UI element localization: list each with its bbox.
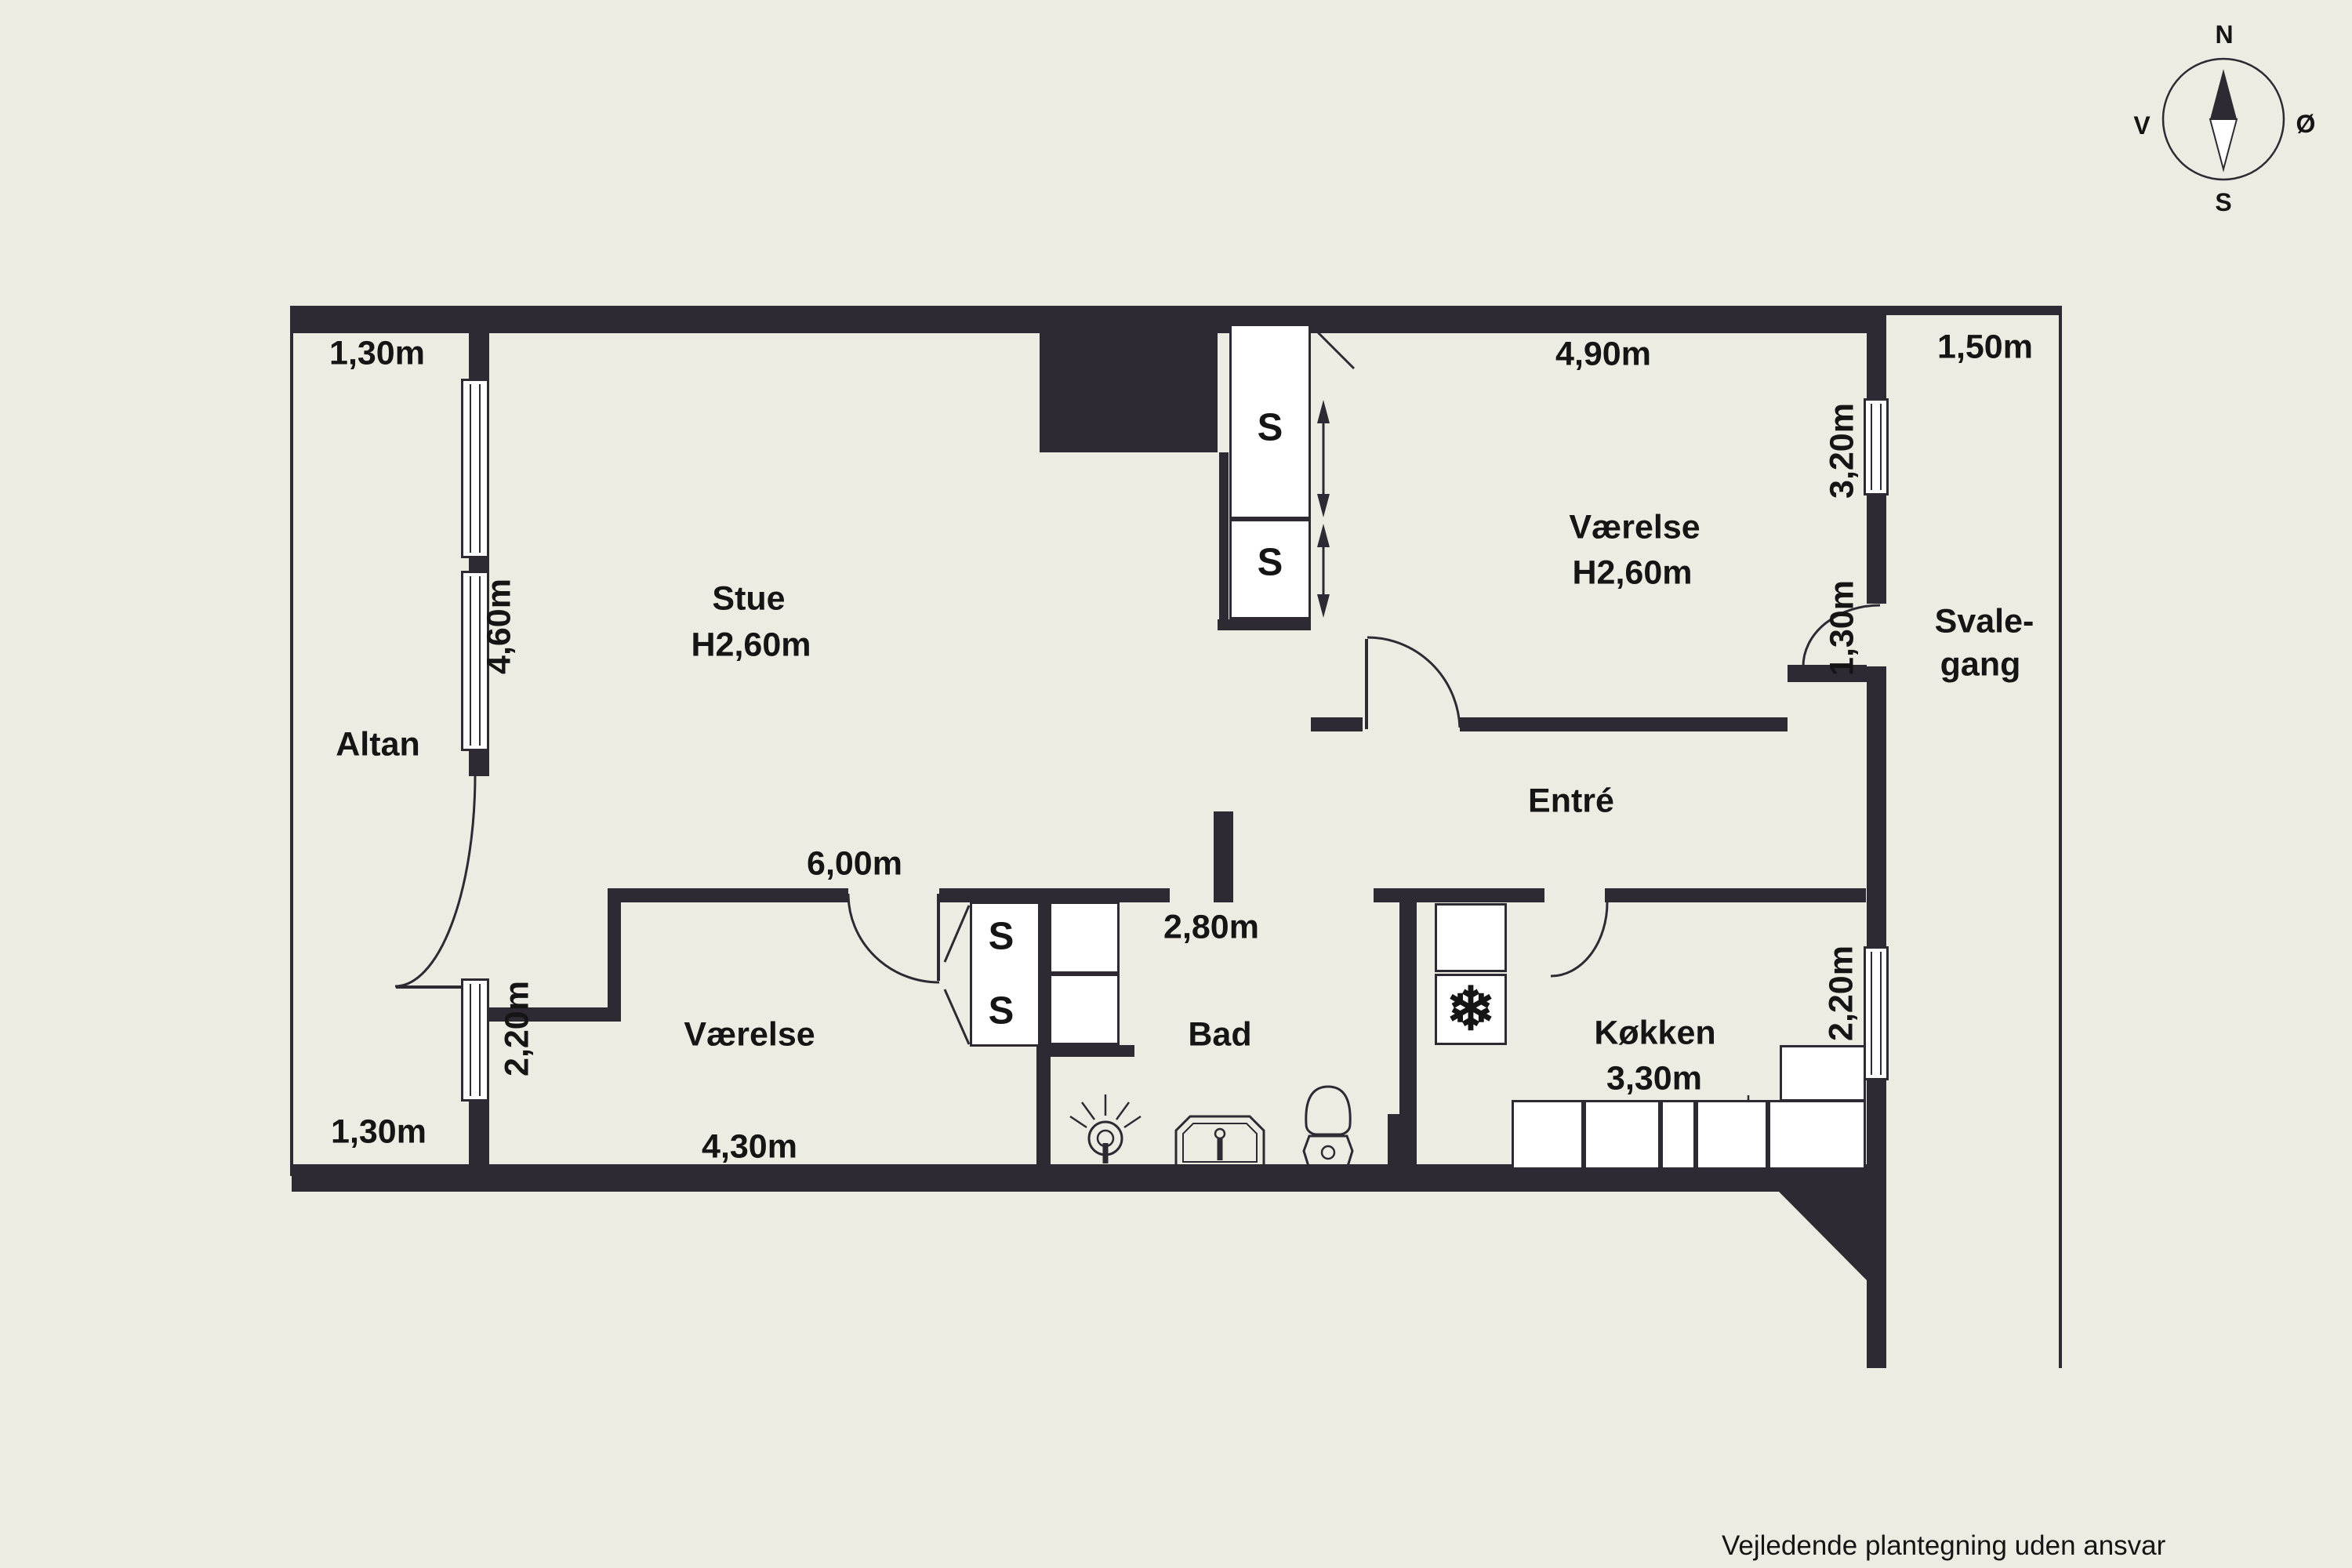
toilet-dot <box>1322 1146 1334 1159</box>
counter-gap <box>1661 1100 1696 1170</box>
dim-stue-width: 6,00m <box>807 848 902 881</box>
compass-o: Ø <box>2296 111 2316 136</box>
dim-vaerelse-sw: 4,30m <box>702 1131 797 1164</box>
room-bad: Bad <box>1188 1018 1251 1052</box>
dim-bad-width: 2,80m <box>1163 911 1259 945</box>
corridor-north-a <box>1311 717 1363 731</box>
closet-ne-2: S <box>1258 544 1283 583</box>
partition-c <box>469 751 489 776</box>
wall-right-d <box>1867 1080 1886 1192</box>
floor-plan-canvas: Vejledende plantegning uden ansvar 1,30m… <box>0 0 2352 1568</box>
washing-machine-box <box>1049 902 1120 974</box>
wall-right-b <box>1867 495 1886 604</box>
plan-linework <box>0 0 2352 1568</box>
partition-d <box>469 1102 489 1168</box>
koekken-window <box>1864 946 1889 1080</box>
room-entre: Entré <box>1528 785 1614 818</box>
sink-dot <box>1215 1129 1225 1138</box>
room-vaerelse-sw: Værelse <box>684 1018 815 1052</box>
door-arc-koekken <box>1551 902 1607 976</box>
svalegang-edge <box>2059 306 2062 1368</box>
wall-right-c <box>1867 666 1886 946</box>
vaerelse-ne-window-mullion <box>1871 404 1882 490</box>
dim-left-window: 4,60m <box>483 579 517 674</box>
height-stue: H2,60m <box>691 629 811 662</box>
altan-window-2-mullion <box>470 576 481 746</box>
shower-ray-5 <box>1124 1116 1141 1127</box>
altan-window-1 <box>461 379 489 558</box>
room-stue: Stue <box>712 583 785 616</box>
corner-chamfer <box>1777 1190 1886 1280</box>
koekken-window-mullion <box>1871 952 1882 1075</box>
room-altan: Altan <box>336 728 420 762</box>
closet-sw-2: S <box>989 993 1014 1031</box>
closet-sw-diag-1 <box>945 906 969 962</box>
partition-b <box>469 558 489 571</box>
door-arc-vaerelse-sw <box>848 894 939 982</box>
room-koekken: Køkken <box>1594 1017 1715 1051</box>
compass-n: N <box>2215 22 2233 47</box>
compass-v: V <box>2133 113 2150 138</box>
laundry-tub-box <box>1049 974 1120 1045</box>
electrical-box <box>1435 903 1507 972</box>
shower-ray-1 <box>1082 1102 1094 1120</box>
compass-needle-south <box>2210 119 2237 169</box>
counter-right <box>1768 1100 1866 1170</box>
dim-entry-door: 1,30m <box>1826 580 1860 676</box>
bad-stub <box>1051 1045 1134 1057</box>
counter-sink <box>1512 1100 1584 1170</box>
room-svalegang-2: gang <box>1940 648 2021 682</box>
chimney-block <box>1040 320 1218 452</box>
dim-koekken: 3,30m <box>1606 1062 1702 1096</box>
dim-partition-window: 2,20m <box>501 981 535 1076</box>
stue-vaerelse-step <box>608 894 621 1022</box>
shower-ray-3 <box>1116 1102 1129 1120</box>
closet-sw-diag-2 <box>945 989 969 1044</box>
wall-top-svalegang <box>1886 306 2060 315</box>
dim-vaerelse-ne-width: 4,90m <box>1555 338 1651 372</box>
bad-east-upper <box>1399 902 1417 1114</box>
stue-vaerelse-main <box>608 888 848 902</box>
room-svalegang-1: Svale- <box>1935 605 2034 639</box>
counter-stove <box>1696 1100 1768 1170</box>
dim-koekken-window: 2,20m <box>1825 946 1859 1041</box>
stue-vaerelse-east <box>939 888 1170 902</box>
room-vaerelse-ne: Værelse <box>1569 511 1700 545</box>
corridor-north-b <box>1460 717 1788 731</box>
shower-ray-4 <box>1070 1116 1087 1127</box>
closet-ne-1: S <box>1258 409 1283 448</box>
counter-corner <box>1780 1045 1866 1102</box>
partition-window <box>461 978 489 1102</box>
bad-north-east <box>1374 888 1544 902</box>
partition-a <box>469 333 489 379</box>
altan-rail <box>290 306 293 1176</box>
altan-window-1-mullion <box>470 384 481 553</box>
closet-under-wall <box>1218 619 1311 630</box>
counter-dishwasher <box>1584 1100 1661 1170</box>
compass-needle-north <box>2210 69 2237 119</box>
dim-altan-top: 1,30m <box>329 337 425 371</box>
bad-east-lower <box>1388 1114 1417 1164</box>
compass-s: S <box>2215 190 2231 215</box>
disclaimer-note: Vejledende plantegning uden ansvar <box>1722 1530 2165 1562</box>
height-vaerelse-ne: H2,60m <box>1573 557 1693 590</box>
wall-right-a <box>1867 306 1886 398</box>
door-arc-altan <box>395 775 475 986</box>
wall-right-lower <box>1867 1280 1886 1368</box>
toilet-tank <box>1306 1087 1350 1134</box>
door-arc-vaerelse-ne <box>1367 637 1460 728</box>
partition-window-mullion <box>470 984 481 1096</box>
dim-svalegang-top: 1,50m <box>1937 331 2033 365</box>
arrowhead-2b <box>1317 594 1330 618</box>
vaerelse-ne-window <box>1864 398 1889 495</box>
dim-ne-window: 3,20m <box>1826 403 1860 499</box>
fridge-snowflake-icon: ❄ <box>1446 980 1496 1040</box>
closet-west-line <box>1219 452 1229 630</box>
entre-stub <box>1214 811 1233 902</box>
koekken-north <box>1605 888 1866 902</box>
dim-altan-bottom: 1,30m <box>331 1116 426 1149</box>
closet-sw-1: S <box>989 918 1014 956</box>
